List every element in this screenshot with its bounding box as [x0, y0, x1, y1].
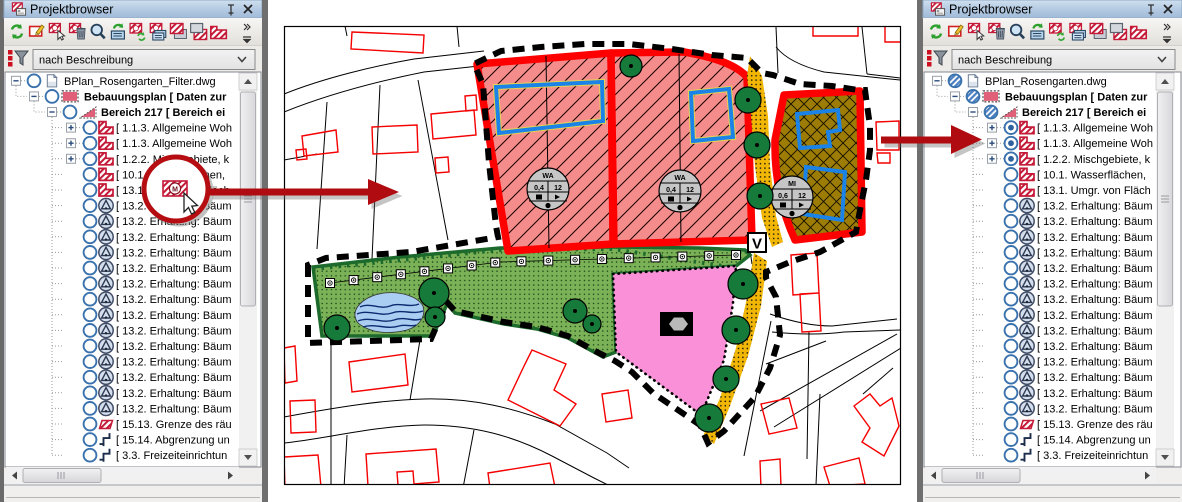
svg-text:[ 13.2. Erhaltung: Bäum: [ 13.2. Erhaltung: Bäum — [1037, 341, 1153, 353]
svg-text:12: 12 — [798, 193, 806, 200]
svg-text:[ 13.2. Erhaltung: Bäum: [ 13.2. Erhaltung: Bäum — [1037, 403, 1153, 415]
svg-text:[ 13.2. Erhaltung: Bäum: [ 13.2. Erhaltung: Bäum — [116, 294, 232, 306]
svg-text:MI: MI — [788, 181, 796, 188]
svg-text:[ 1.1.3. Allgemeine Woh: [ 1.1.3. Allgemeine Woh — [1037, 123, 1153, 135]
svg-text:Projektbrowser: Projektbrowser — [949, 3, 1032, 17]
svg-text:[ 13.2. Erhaltung: Bäum: [ 13.2. Erhaltung: Bäum — [1037, 279, 1153, 291]
svg-text:[ 13.2. Erhaltung: Bäum: [ 13.2. Erhaltung: Bäum — [1037, 201, 1153, 213]
svg-text:[ 13.2. Erhaltung: Bäum: [ 13.2. Erhaltung: Bäum — [116, 357, 232, 369]
svg-text:Bebauungsplan [ Daten zur: Bebauungsplan [ Daten zur — [84, 91, 227, 103]
svg-text:[ 13.2. Erhaltung: Bäum: [ 13.2. Erhaltung: Bäum — [1037, 216, 1153, 228]
svg-text:WA: WA — [542, 173, 553, 180]
svg-text:Bebauungsplan [ Daten zur: Bebauungsplan [ Daten zur — [1005, 91, 1148, 103]
svg-text:[ 13.2. Erhaltung: Bäum: [ 13.2. Erhaltung: Bäum — [116, 372, 232, 384]
svg-text:0,4: 0,4 — [666, 187, 676, 194]
svg-text:0,6: 0,6 — [778, 193, 788, 200]
svg-text:[ 10.1. Wasserflächen,: [ 10.1. Wasserflächen, — [1037, 169, 1146, 181]
svg-text:[ 13.2. Erhaltung: Bäum: [ 13.2. Erhaltung: Bäum — [1037, 357, 1153, 369]
svg-text:[ 13.2. Erhaltung: Bäum: [ 13.2. Erhaltung: Bäum — [116, 403, 232, 415]
svg-text:12: 12 — [554, 185, 562, 192]
svg-text:[ 13.2. Erhaltung: Bäum: [ 13.2. Erhaltung: Bäum — [1037, 294, 1153, 306]
svg-text:[ 13.2. Erhaltung: Bäum: [ 13.2. Erhaltung: Bäum — [116, 341, 232, 353]
svg-text:[ 15.14. Abgrenzung un: [ 15.14. Abgrenzung un — [116, 435, 230, 447]
svg-text:Projektbrowser: Projektbrowser — [30, 3, 113, 17]
svg-text:WA: WA — [674, 175, 685, 182]
svg-text:BPlan_Rosengarten.dwg: BPlan_Rosengarten.dwg — [985, 76, 1107, 88]
svg-text:[ 13.2. Erhaltung: Bäum: [ 13.2. Erhaltung: Bäum — [1037, 263, 1153, 275]
svg-text:[ 13.2. Erhaltung: Bäum: [ 13.2. Erhaltung: Bäum — [116, 388, 232, 400]
svg-text:[ 13.2. Erhaltung: Bäum: [ 13.2. Erhaltung: Bäum — [116, 247, 232, 259]
svg-text:[ 1.1.3. Allgemeine Woh: [ 1.1.3. Allgemeine Woh — [116, 138, 232, 150]
svg-text:[ 13.2. Erhaltung: Bäum: [ 13.2. Erhaltung: Bäum — [1037, 372, 1153, 384]
svg-text:[ 13.2. Erhaltung: Bäum: [ 13.2. Erhaltung: Bäum — [116, 325, 232, 337]
svg-text:[ 1.1.3. Allgemeine Woh: [ 1.1.3. Allgemeine Woh — [116, 123, 232, 135]
svg-text:0,4: 0,4 — [534, 185, 544, 192]
svg-text:BPlan_Rosengarten_Filter.dwg: BPlan_Rosengarten_Filter.dwg — [64, 76, 216, 88]
svg-text:[ 13.2. Erhaltung: Bäum: [ 13.2. Erhaltung: Bäum — [1037, 232, 1153, 244]
svg-text:Bereich 217 [ Bereich ei: Bereich 217 [ Bereich ei — [1022, 107, 1146, 119]
svg-text:[ 13.2. Erhaltung: Bäum: [ 13.2. Erhaltung: Bäum — [116, 263, 232, 275]
svg-text:[ 13.2. Erhaltung: Bäum: [ 13.2. Erhaltung: Bäum — [116, 279, 232, 291]
svg-text:[ 13.2. Erhaltung: Bäum: [ 13.2. Erhaltung: Bäum — [116, 232, 232, 244]
svg-text:[ 15.13. Grenze des räu: [ 15.13. Grenze des räu — [1037, 419, 1153, 431]
svg-text:[ 3.3. Freizeiteinrichtun: [ 3.3. Freizeiteinrichtun — [116, 450, 227, 462]
svg-text:[ 13.2. Erhaltung: Bäum: [ 13.2. Erhaltung: Bäum — [1037, 310, 1153, 322]
svg-text:nach Beschreibung: nach Beschreibung — [39, 55, 133, 67]
svg-text:M: M — [172, 187, 178, 194]
svg-text:[ 13.2. Erhaltung: Bäum: [ 13.2. Erhaltung: Bäum — [1037, 247, 1153, 259]
svg-text:V: V — [752, 236, 762, 253]
svg-text:[ 15.13. Grenze des räu: [ 15.13. Grenze des räu — [116, 419, 232, 431]
svg-text:nach Beschreibung: nach Beschreibung — [958, 55, 1052, 67]
svg-text:[ 3.3. Freizeiteinrichtun: [ 3.3. Freizeiteinrichtun — [1037, 450, 1148, 462]
svg-text:[ 1.2.2. Mischgebiete, k: [ 1.2.2. Mischgebiete, k — [1037, 154, 1151, 166]
svg-text:[ 13.2. Erhaltung: Bäum: [ 13.2. Erhaltung: Bäum — [1037, 388, 1153, 400]
svg-text:[ 13.1. Umgr. von Fläch: [ 13.1. Umgr. von Fläch — [1037, 185, 1151, 197]
svg-text:[ 1.1.3. Allgemeine Woh: [ 1.1.3. Allgemeine Woh — [1037, 138, 1153, 150]
svg-text:[ 15.14. Abgrenzung un: [ 15.14. Abgrenzung un — [1037, 435, 1151, 447]
svg-text:[ 13.2. Erhaltung: Bäum: [ 13.2. Erhaltung: Bäum — [1037, 325, 1153, 337]
svg-text:12: 12 — [686, 187, 694, 194]
svg-text:Bereich 217 [ Bereich ei: Bereich 217 [ Bereich ei — [101, 107, 225, 119]
svg-text:[ 13.2. Erhaltung: Bäum: [ 13.2. Erhaltung: Bäum — [116, 310, 232, 322]
